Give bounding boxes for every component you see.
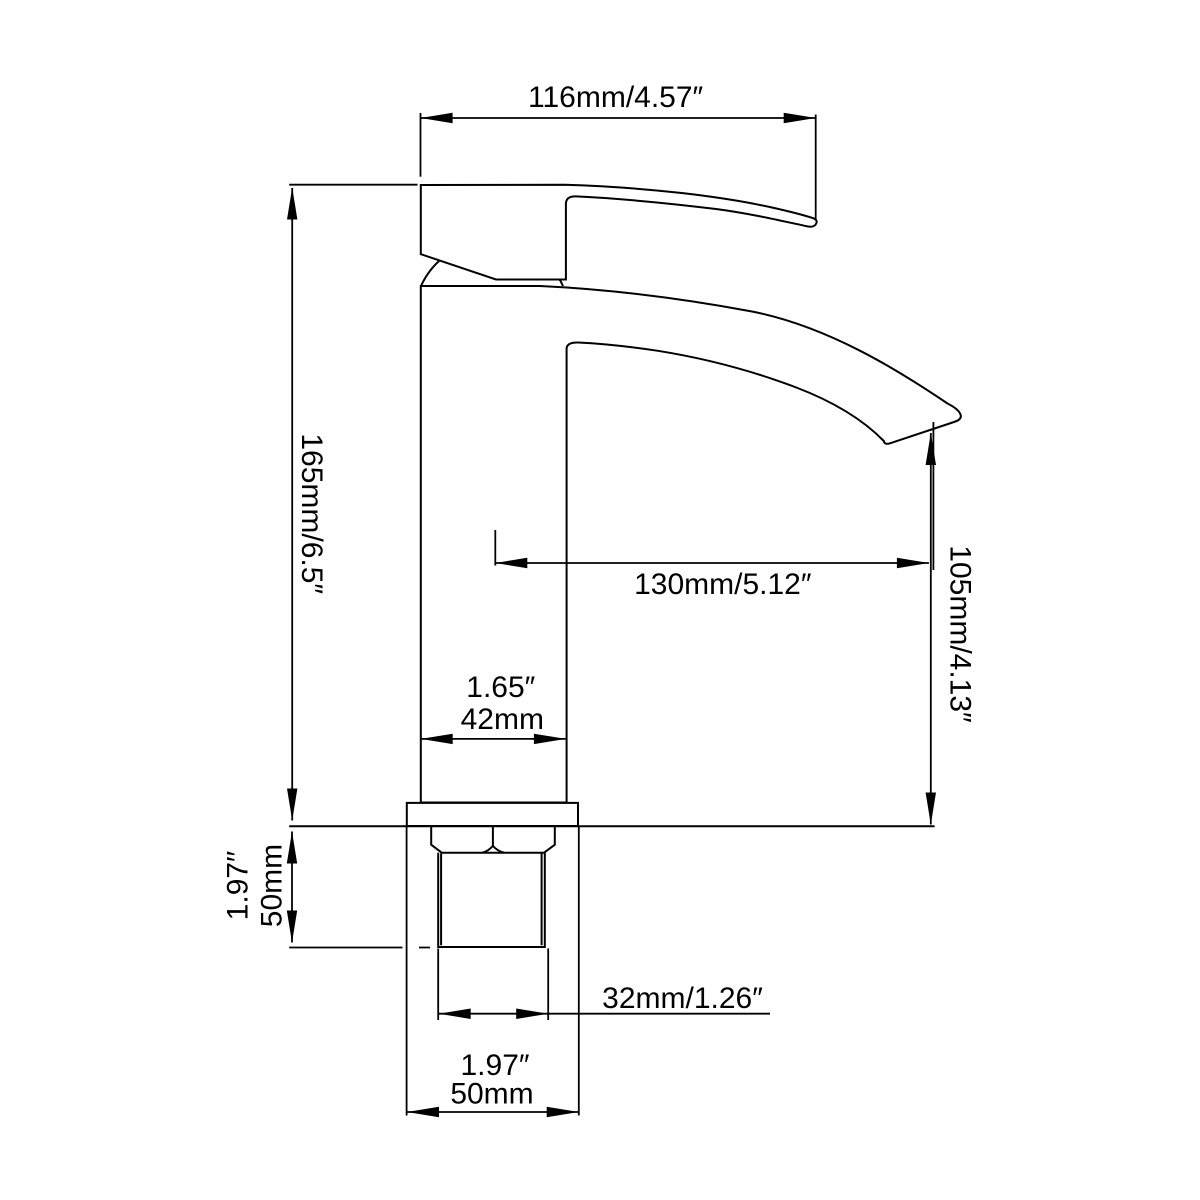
svg-text:50mm: 50mm xyxy=(450,1078,533,1111)
svg-text:42mm: 42mm xyxy=(461,703,544,736)
svg-text:165mm/6.5″: 165mm/6.5″ xyxy=(295,433,328,594)
svg-text:1.65″: 1.65″ xyxy=(466,671,535,704)
svg-text:50mm: 50mm xyxy=(256,844,289,927)
svg-text:105mm/4.13″: 105mm/4.13″ xyxy=(944,545,977,723)
svg-text:116mm/4.57″: 116mm/4.57″ xyxy=(528,81,704,114)
svg-text:32mm/1.26″: 32mm/1.26″ xyxy=(602,982,763,1015)
svg-text:1.97′′: 1.97′′ xyxy=(222,850,255,920)
svg-text:130mm/5.12″: 130mm/5.12″ xyxy=(634,568,812,601)
